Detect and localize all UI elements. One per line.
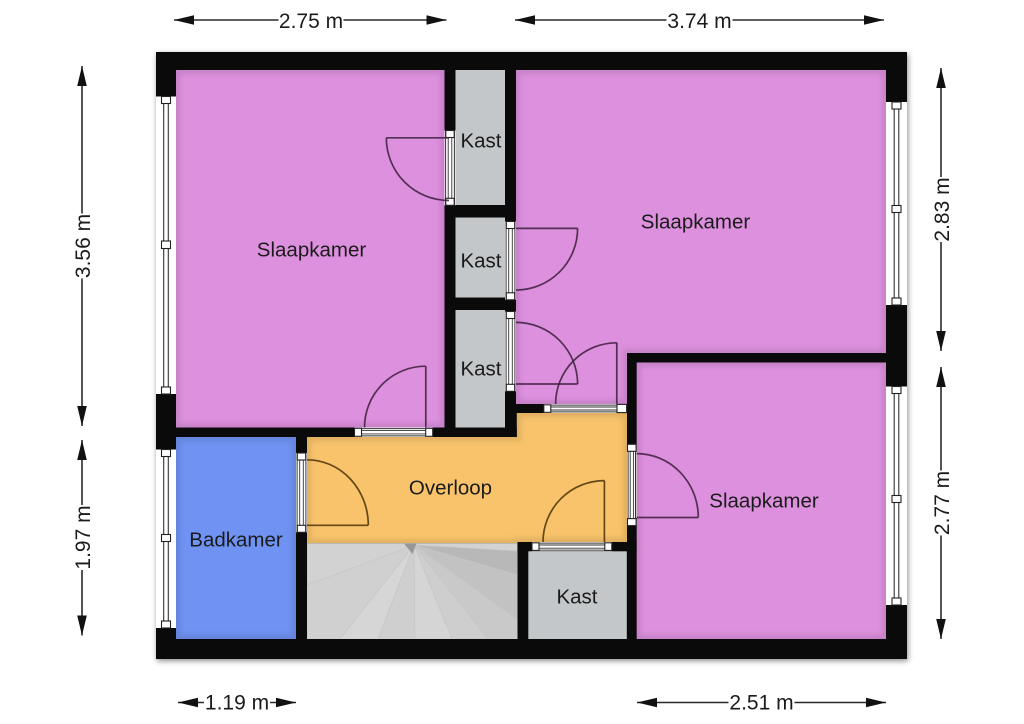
svg-text:Kast: Kast (460, 249, 501, 272)
svg-text:2.77 m: 2.77 m (931, 471, 954, 535)
svg-text:Slaapkamer: Slaapkamer (641, 210, 751, 233)
svg-text:Kast: Kast (460, 129, 501, 152)
svg-text:2.51 m: 2.51 m (729, 692, 793, 715)
svg-text:2.83 m: 2.83 m (931, 177, 954, 241)
svg-text:3.74 m: 3.74 m (667, 10, 731, 33)
svg-text:Kast: Kast (460, 357, 501, 380)
svg-text:1.19 m: 1.19 m (205, 692, 269, 715)
svg-text:Kast: Kast (556, 585, 597, 608)
svg-text:2.75 m: 2.75 m (279, 10, 343, 33)
svg-text:3.56 m: 3.56 m (72, 214, 95, 278)
svg-text:1.97 m: 1.97 m (72, 505, 95, 569)
svg-text:Badkamer: Badkamer (189, 528, 283, 551)
svg-text:Slaapkamer: Slaapkamer (709, 489, 819, 512)
svg-text:Overloop: Overloop (409, 476, 492, 499)
svg-text:Slaapkamer: Slaapkamer (257, 239, 367, 262)
